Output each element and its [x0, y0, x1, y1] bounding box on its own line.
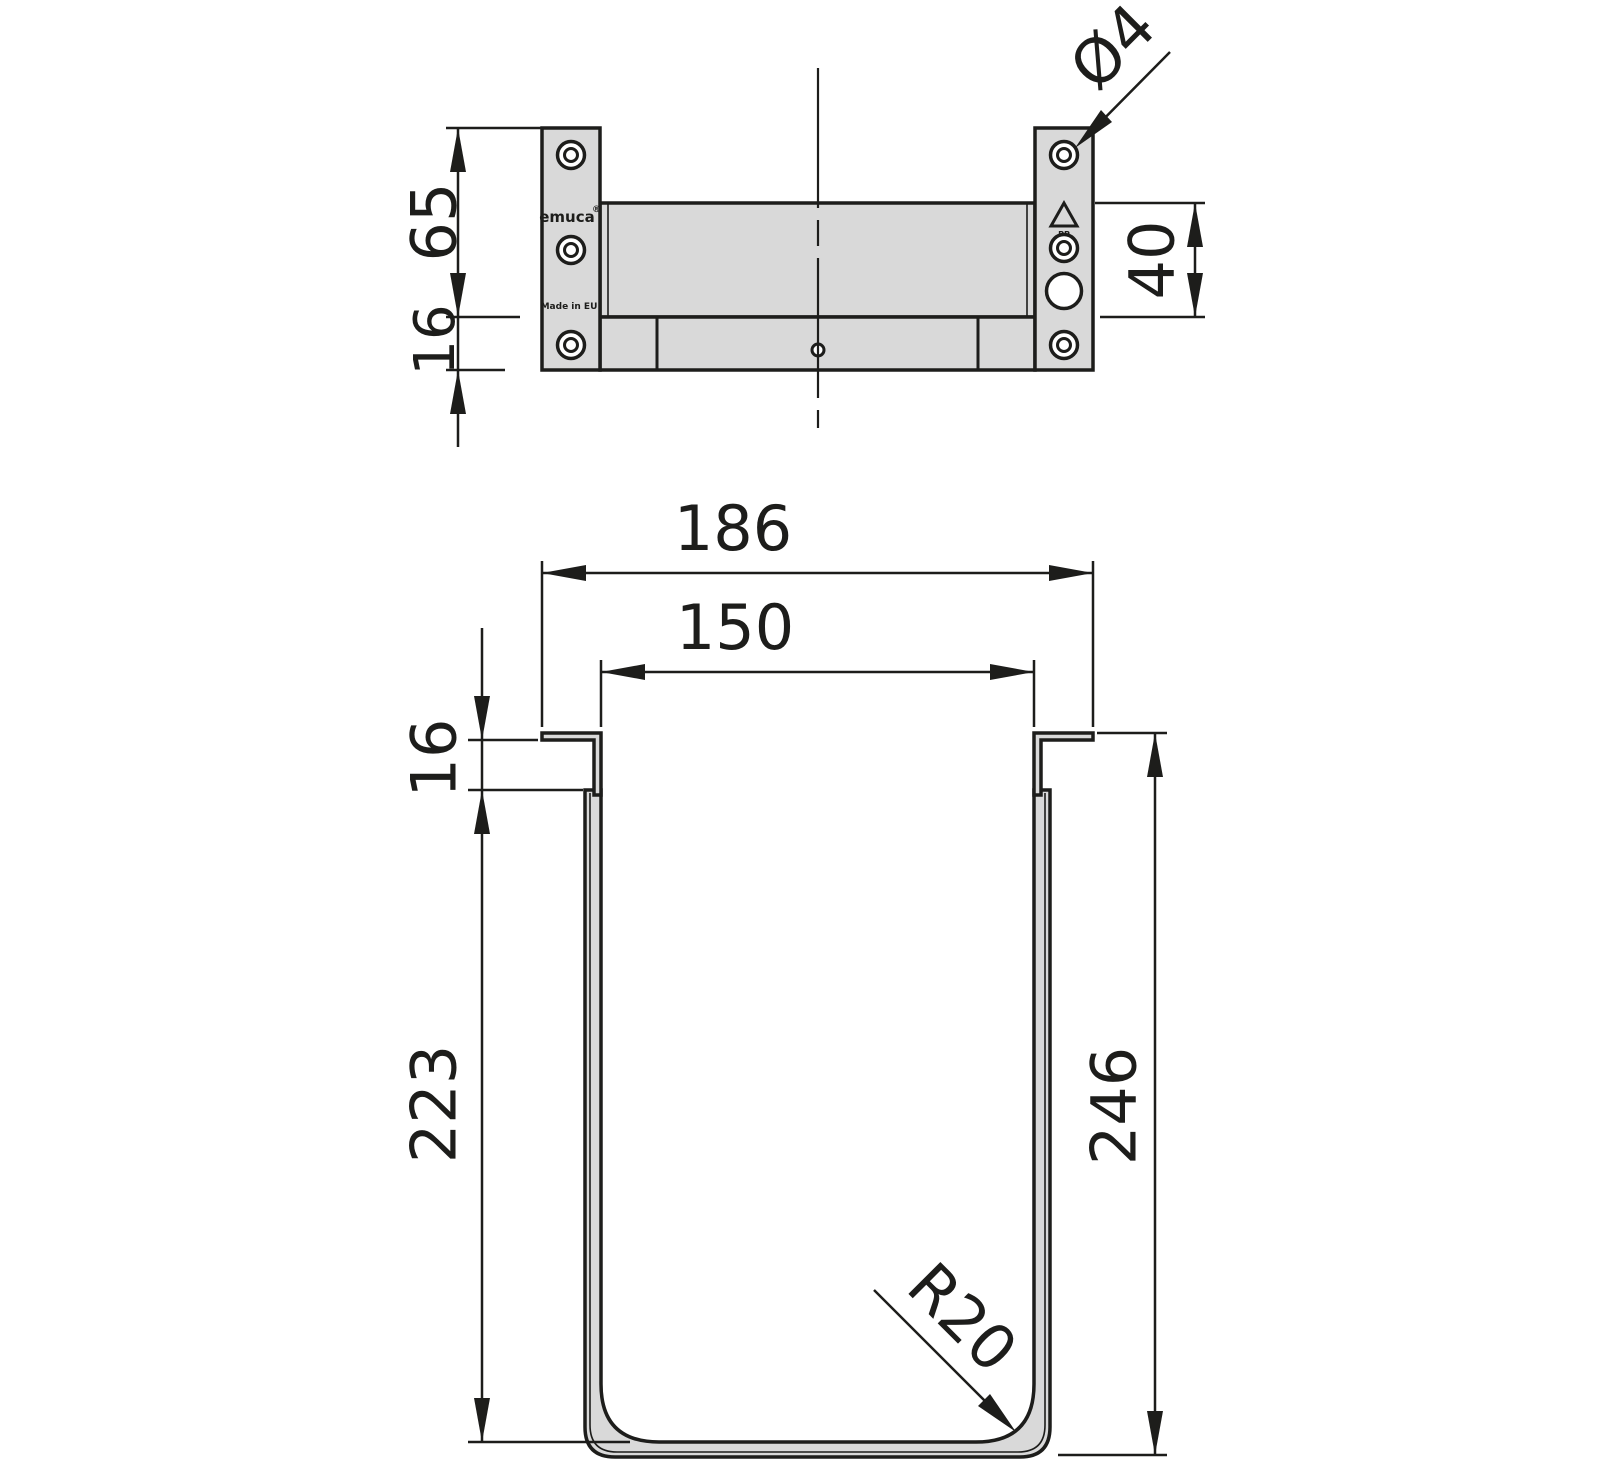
- dimension-drawing-svg: emuca ® Made in EU PP 65 16: [0, 0, 1600, 1481]
- dimension-186: 186: [542, 492, 1093, 727]
- arrowhead-down: [474, 1398, 490, 1442]
- callout-hole-diameter: Ø4: [1056, 0, 1170, 148]
- registered-mark: ®: [592, 205, 601, 215]
- dim-label-tab-height: 65: [397, 183, 470, 262]
- arrowhead-up: [1187, 203, 1203, 247]
- arrowhead-left: [601, 664, 645, 680]
- arrowhead-down: [1147, 1411, 1163, 1455]
- container-section-view: 186 150 16 223: [397, 492, 1167, 1457]
- right-rim-hook: [1034, 733, 1093, 795]
- technical-drawing-page: emuca ® Made in EU PP 65 16: [0, 0, 1600, 1481]
- dim-label-outer-width: 186: [674, 492, 792, 565]
- origin-label: Made in EU: [541, 302, 598, 312]
- dim-label-rail-height: 16: [403, 304, 468, 375]
- dimension-65-16: 65 16: [397, 128, 542, 447]
- dim-label-inner-depth: 223: [397, 1045, 470, 1163]
- arrowhead-right: [1049, 565, 1093, 581]
- callout-corner-radius: R20: [874, 1249, 1031, 1432]
- dim-label-overall-depth: 246: [1077, 1047, 1150, 1165]
- screw-hole: [565, 149, 578, 162]
- dim-label-hook-depth: 16: [397, 719, 470, 798]
- screw-hole: [565, 339, 578, 352]
- arrowhead-down: [1187, 273, 1203, 317]
- dimension-246: 246: [1058, 733, 1167, 1455]
- screw-hole: [1058, 242, 1071, 255]
- screw-hole: [1058, 149, 1071, 162]
- dim-label-hole-diameter: Ø4: [1056, 0, 1170, 104]
- screw-hole: [1058, 339, 1071, 352]
- arrowhead-up: [474, 790, 490, 834]
- dim-label-back-height: 40: [1115, 221, 1188, 300]
- arrowhead-down: [474, 696, 490, 740]
- brand-logo-text: emuca: [539, 208, 595, 226]
- dimension-40: 40: [1095, 203, 1205, 317]
- dim-label-inner-width: 150: [676, 591, 794, 664]
- left-rim-hook: [542, 733, 601, 795]
- screw-hole: [565, 244, 578, 257]
- arrowhead-up: [1147, 733, 1163, 777]
- large-round-hole: [1047, 274, 1082, 309]
- dimension-150: 150: [601, 591, 1034, 727]
- bracket-front-view: emuca ® Made in EU PP 65 16: [397, 0, 1205, 447]
- dim-label-corner-radius: R20: [893, 1249, 1031, 1387]
- arrowhead-right: [990, 664, 1034, 680]
- arrowhead-up: [450, 128, 466, 172]
- arrowhead-left: [542, 565, 586, 581]
